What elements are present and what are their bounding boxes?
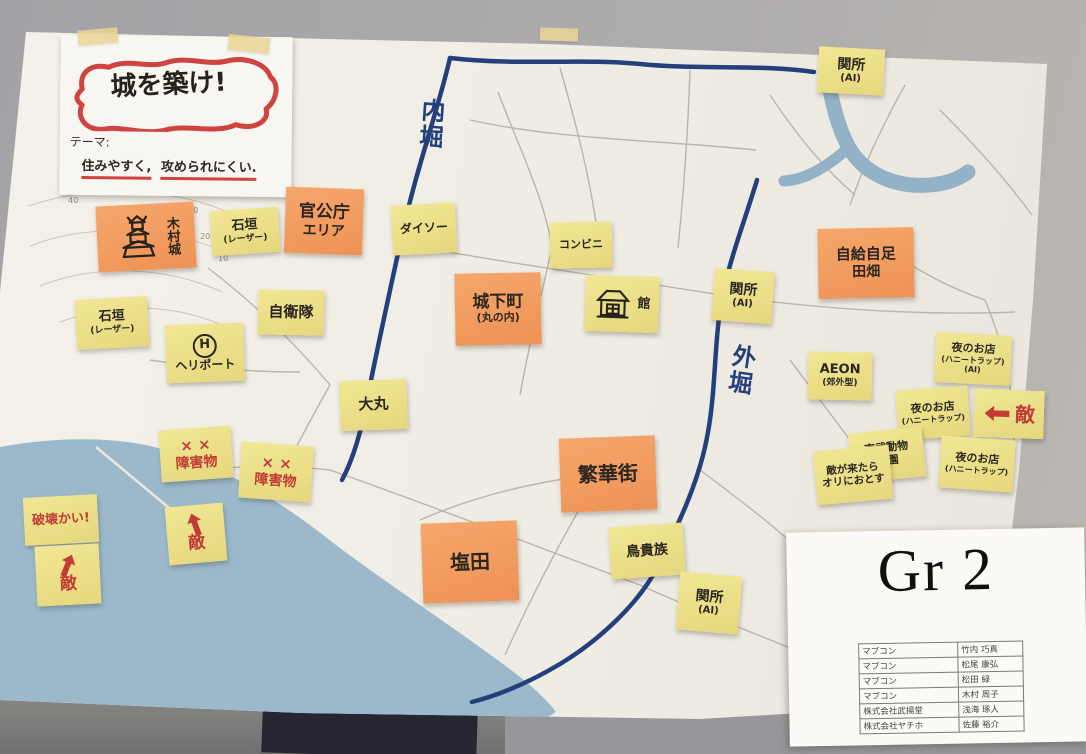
group-title: Gr 2: [786, 533, 1085, 607]
member-name: 浅海 琢人: [959, 701, 1024, 717]
heliport-icon: H: [192, 333, 217, 358]
castle-icon: [112, 212, 162, 262]
sticky-note-house: 館: [584, 275, 660, 334]
sticky-note-daimaru: 大丸: [339, 379, 408, 431]
sticky-note-government-area: 官公庁 エリア: [284, 187, 364, 256]
note-text: (レーザー): [223, 232, 268, 245]
note-text: 自衛隊: [268, 303, 313, 321]
table-row: 株式会社ヤチホ 佐藤 裕介: [860, 716, 1024, 734]
note-text: AEON: [820, 363, 861, 379]
sticky-note-jikyu-jisoku: 自給自足 田畑: [817, 227, 914, 299]
x-marks: × ×: [180, 436, 211, 455]
note-text: (丸の内): [477, 312, 520, 325]
member-org: 株式会社ヤチホ: [860, 717, 959, 734]
note-text: 関所: [837, 56, 866, 74]
sticky-note-ishigaki-2: 石垣 (レーザー): [75, 296, 150, 350]
sticky-note-sekisho-mid: 関所 (AI): [711, 268, 774, 324]
note-text: 塩田: [450, 550, 491, 574]
note-text: 繁華街: [578, 461, 639, 486]
note-text: 敵: [1015, 403, 1036, 427]
sticky-note-kimura-castle: 木村城: [95, 201, 196, 272]
tape-strip: [540, 27, 578, 41]
member-org: 株式会社武揚堂: [860, 702, 959, 719]
house-icon: [593, 286, 634, 321]
sticky-note-yoru-3: 夜のお店 (ハニートラップ): [938, 435, 1015, 492]
theme-text: 住みやすく, 攻められにくい.: [81, 155, 256, 176]
sticky-note-teki-left: 敵: [34, 543, 101, 606]
heliport-symbol: H: [199, 338, 210, 353]
member-table: マブコン 竹内 巧真 マブコン 松尾 康弘 マブコン 松田 緑 マブコン 木村 …: [858, 640, 1025, 734]
member-org: マブコン: [859, 642, 958, 659]
note-text: (レーザー): [90, 324, 135, 337]
note-text: ヘリポート: [175, 358, 235, 374]
member-org: マブコン: [859, 657, 958, 674]
note-text: (AI): [964, 365, 981, 375]
group-card: Gr 2 マブコン 竹内 巧真 マブコン 松尾 康弘 マブコン 松田 緑 マブコ…: [786, 527, 1086, 746]
note-text: 障害物: [254, 471, 297, 490]
note-text: 障害物: [175, 453, 218, 472]
sticky-note-daiso: ダイソー: [391, 202, 458, 255]
note-text: ダイソー: [400, 221, 449, 237]
theme-part-1: 住みやすく,: [81, 159, 151, 180]
note-text: 自給自足: [836, 246, 896, 264]
sticky-note-teki-mid: 敵: [165, 503, 228, 566]
note-text: 館: [637, 297, 651, 312]
sticky-note-teki-right: 敵: [973, 389, 1045, 439]
note-text: エリア: [302, 222, 345, 240]
sticky-note-ori-trap: 敵が来たら オリにおとす: [813, 445, 893, 505]
member-name: 木村 周子: [958, 686, 1023, 702]
theme-label: テーマ:: [70, 133, 110, 150]
outer-moat-label: 外堀: [720, 342, 762, 398]
note-text: (AI): [840, 73, 861, 86]
sticky-note-sekisho-bottom: 関所 (AI): [676, 571, 743, 634]
sticky-note-hakai: 破壊かい!: [23, 494, 99, 546]
note-text: (AI): [698, 604, 720, 617]
sticky-note-shioda: 塩田: [421, 520, 520, 603]
note-text: 関所: [729, 281, 758, 299]
sticky-note-obstacles-1: × × 障害物: [158, 426, 233, 483]
x-marks: × ×: [261, 454, 292, 473]
sticky-note-yoru-1: 夜のお店 (ハニートラップ) (AI): [934, 332, 1013, 386]
note-text: 田畑: [852, 263, 880, 280]
note-text: 官公庁: [298, 202, 350, 223]
note-text: 木村城: [164, 216, 179, 256]
note-text: 鳥貴族: [625, 542, 668, 561]
sticky-note-konbini: コンビニ: [550, 221, 613, 268]
sticky-note-torikizoku: 鳥貴族: [608, 522, 685, 579]
theme-part-2: 攻められにくい.: [161, 160, 257, 181]
sticky-note-castle-town: 城下町 (丸の内): [454, 272, 541, 345]
sticky-note-heliport: H ヘリポート: [165, 323, 245, 384]
contour-number: 40: [68, 196, 78, 205]
note-text: (郊外型): [822, 378, 857, 389]
member-org: マブコン: [859, 687, 958, 704]
member-name: 松尾 康弘: [958, 656, 1023, 672]
enemy-arrow-icon: [983, 403, 1012, 424]
note-text: 大丸: [358, 396, 389, 414]
contour-number: 20: [200, 232, 210, 241]
member-org: マブコン: [859, 672, 958, 689]
member-name: 松田 緑: [958, 671, 1023, 687]
member-name: 竹内 巧真: [958, 641, 1023, 657]
sticky-note-hankagai: 繁華街: [559, 435, 658, 512]
photo-of-workshop-map: 内堀 外堀 40 30 20 10 城を築け! テーマ: 住みやすく, 攻められ…: [0, 0, 1086, 754]
sticky-note-obstacles-2: × × 障害物: [238, 442, 314, 503]
sticky-note-ishigaki-1: 石垣 (レーザー): [210, 207, 281, 257]
sticky-note-jieitai: 自衛隊: [258, 289, 325, 335]
sticky-note-aeon: AEON (郊外型): [808, 351, 873, 400]
note-text: コンビニ: [559, 238, 603, 251]
member-name: 佐藤 裕介: [959, 716, 1024, 732]
inner-moat-label: 内堀: [411, 97, 450, 151]
note-text: (AI): [732, 298, 753, 311]
sticky-note-sekisho-top: 関所 (AI): [817, 46, 885, 95]
note-text: 破壊かい!: [32, 511, 91, 529]
title-card: 城を築け! テーマ: 住みやすく, 攻められにくい.: [59, 35, 293, 197]
